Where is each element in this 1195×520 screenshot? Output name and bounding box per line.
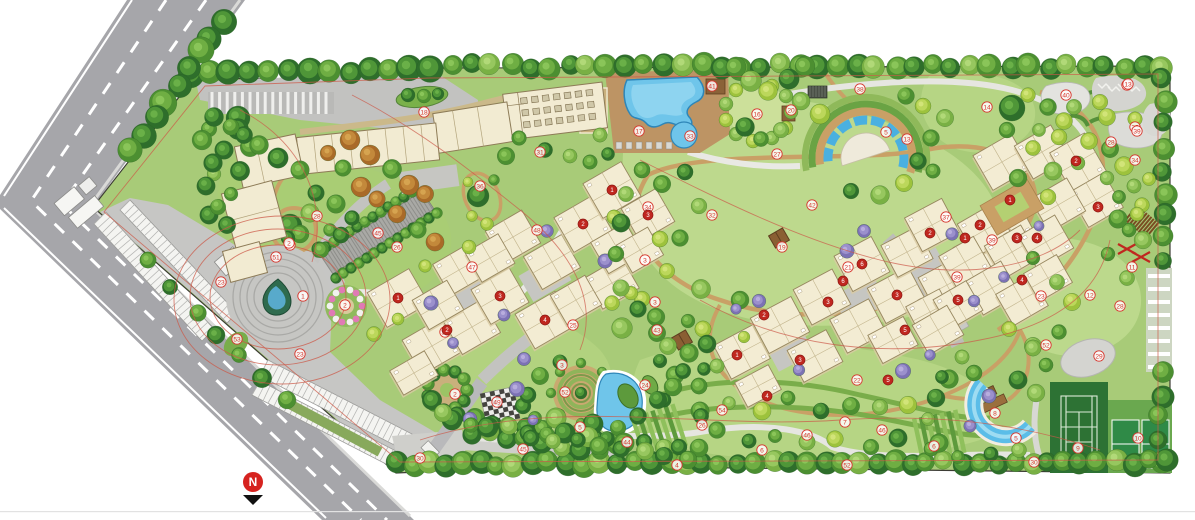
svg-text:19: 19 bbox=[778, 244, 786, 251]
svg-text:45: 45 bbox=[519, 446, 527, 453]
svg-text:46: 46 bbox=[878, 427, 886, 434]
svg-text:18: 18 bbox=[420, 109, 428, 116]
svg-text:2: 2 bbox=[287, 240, 291, 247]
svg-text:37: 37 bbox=[942, 214, 950, 221]
svg-text:3: 3 bbox=[653, 299, 657, 306]
svg-text:53: 53 bbox=[233, 336, 241, 343]
svg-text:28: 28 bbox=[313, 213, 321, 220]
svg-text:30: 30 bbox=[1030, 459, 1038, 466]
svg-text:45: 45 bbox=[374, 230, 382, 237]
svg-text:40: 40 bbox=[1062, 92, 1070, 99]
svg-text:48: 48 bbox=[533, 227, 541, 234]
svg-text:43: 43 bbox=[653, 327, 661, 334]
svg-text:39: 39 bbox=[1133, 128, 1141, 135]
svg-text:28: 28 bbox=[1107, 139, 1115, 146]
svg-text:28: 28 bbox=[1116, 303, 1124, 310]
svg-text:12: 12 bbox=[1086, 292, 1094, 299]
svg-text:14: 14 bbox=[983, 104, 991, 111]
svg-text:31: 31 bbox=[536, 149, 544, 156]
svg-text:8: 8 bbox=[993, 410, 997, 417]
svg-text:23: 23 bbox=[217, 279, 225, 286]
svg-text:N: N bbox=[249, 475, 258, 489]
svg-text:30: 30 bbox=[416, 455, 424, 462]
svg-text:16: 16 bbox=[753, 111, 761, 118]
svg-text:52: 52 bbox=[561, 389, 569, 396]
svg-text:13: 13 bbox=[1124, 81, 1132, 88]
svg-text:9: 9 bbox=[1076, 445, 1080, 452]
svg-text:2: 2 bbox=[343, 302, 347, 309]
svg-text:22: 22 bbox=[853, 377, 861, 384]
svg-text:1: 1 bbox=[301, 293, 305, 300]
svg-text:46: 46 bbox=[803, 432, 811, 439]
svg-text:27: 27 bbox=[773, 151, 781, 158]
svg-text:24: 24 bbox=[641, 382, 649, 389]
svg-text:5: 5 bbox=[1014, 435, 1018, 442]
svg-text:51: 51 bbox=[272, 254, 280, 261]
svg-text:4: 4 bbox=[675, 462, 679, 469]
svg-text:26: 26 bbox=[698, 422, 706, 429]
svg-text:6: 6 bbox=[760, 447, 764, 454]
svg-text:3: 3 bbox=[560, 362, 564, 369]
svg-text:49: 49 bbox=[493, 399, 501, 406]
svg-text:13: 13 bbox=[903, 136, 911, 143]
svg-text:33: 33 bbox=[686, 133, 694, 140]
svg-text:39: 39 bbox=[953, 274, 961, 281]
svg-text:20: 20 bbox=[787, 107, 795, 114]
svg-text:10: 10 bbox=[1134, 435, 1142, 442]
svg-text:3: 3 bbox=[643, 257, 647, 264]
svg-text:39: 39 bbox=[988, 237, 996, 244]
svg-text:23: 23 bbox=[1037, 293, 1045, 300]
svg-text:54: 54 bbox=[718, 407, 726, 414]
svg-text:41: 41 bbox=[708, 83, 716, 90]
svg-text:17: 17 bbox=[635, 128, 643, 135]
svg-text:29: 29 bbox=[1095, 353, 1103, 360]
svg-text:44: 44 bbox=[623, 439, 631, 446]
svg-text:32: 32 bbox=[708, 212, 716, 219]
svg-text:52: 52 bbox=[843, 462, 851, 469]
svg-text:47: 47 bbox=[468, 264, 476, 271]
svg-text:36: 36 bbox=[476, 183, 484, 190]
svg-text:7: 7 bbox=[843, 419, 847, 426]
svg-text:6: 6 bbox=[932, 443, 936, 450]
svg-text:5: 5 bbox=[884, 129, 888, 136]
svg-text:5: 5 bbox=[578, 424, 582, 431]
svg-text:26: 26 bbox=[393, 244, 401, 251]
svg-text:42: 42 bbox=[808, 202, 816, 209]
svg-text:23: 23 bbox=[296, 351, 304, 358]
svg-text:11: 11 bbox=[1129, 264, 1136, 271]
svg-text:21: 21 bbox=[844, 264, 852, 271]
svg-text:38: 38 bbox=[856, 86, 864, 93]
svg-text:2: 2 bbox=[453, 391, 457, 398]
svg-text:34: 34 bbox=[1131, 157, 1139, 164]
svg-text:52: 52 bbox=[1042, 342, 1050, 349]
svg-text:25: 25 bbox=[569, 322, 577, 329]
